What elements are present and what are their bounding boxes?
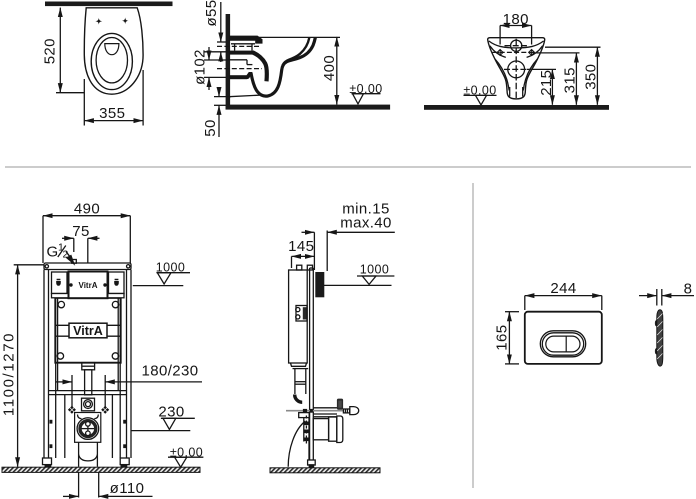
- svg-text:145: 145: [288, 238, 314, 255]
- svg-text:244: 244: [550, 280, 576, 297]
- svg-text:ø110: ø110: [110, 480, 145, 497]
- svg-text:180: 180: [503, 11, 529, 28]
- svg-text:VitrA: VitrA: [79, 281, 98, 290]
- svg-text:8: 8: [684, 280, 693, 297]
- svg-text:ø102: ø102: [192, 49, 209, 85]
- svg-text:315: 315: [562, 67, 579, 93]
- svg-text:1000: 1000: [360, 263, 389, 277]
- svg-text:VitrA: VitrA: [73, 324, 103, 338]
- svg-text:400: 400: [321, 55, 338, 81]
- svg-text:1100/1270: 1100/1270: [1, 332, 18, 416]
- svg-text:215: 215: [538, 70, 555, 96]
- svg-text:75: 75: [72, 223, 90, 240]
- svg-text:350: 350: [583, 64, 600, 90]
- svg-text:180/230: 180/230: [141, 363, 198, 380]
- svg-text:50: 50: [202, 119, 219, 137]
- svg-text:G: G: [47, 244, 59, 261]
- svg-text:ø55: ø55: [203, 0, 220, 27]
- svg-text:355: 355: [99, 105, 125, 122]
- svg-text:520: 520: [42, 38, 59, 64]
- svg-text:max.40: max.40: [340, 215, 392, 232]
- svg-text:490: 490: [74, 200, 100, 217]
- svg-text:165: 165: [494, 324, 511, 350]
